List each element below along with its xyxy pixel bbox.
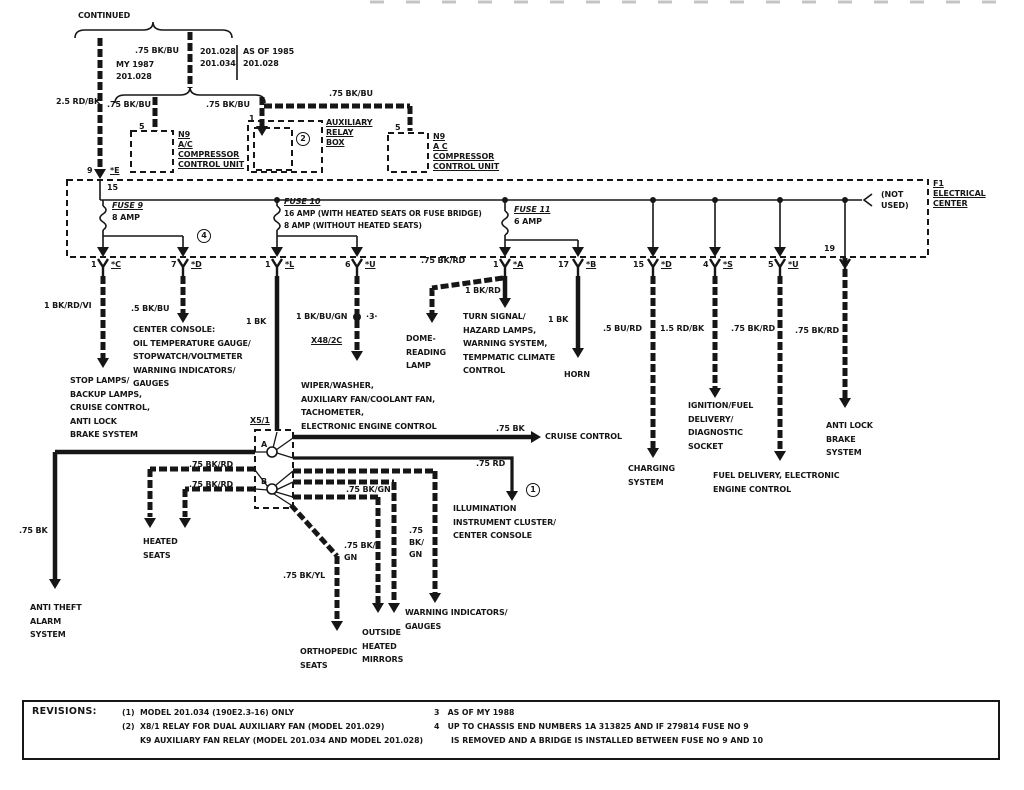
fuse-9-label: FUSE 9 (112, 200, 143, 212)
conn-pin-l: 1 (265, 259, 270, 271)
load-ignition-fuel: IGNITION/FUEL DELIVERY/ DIAGNOSTIC SOCKE… (688, 399, 753, 453)
wire-label-bk-bu-c: .75 BK/BU (206, 99, 250, 111)
wire-label-bk-bu-gn: 1 BK/BU/GN (296, 311, 347, 323)
revisions-title: REVISIONS: (32, 706, 97, 717)
revisions-box: REVISIONS: (1) MODEL 201.034 (190E2.3-16… (22, 700, 1000, 760)
pin-9-entry: 9 (87, 165, 92, 177)
wire-label-rd-75: .75 RD (476, 458, 505, 470)
conn-pin-c: 1 (91, 259, 96, 271)
component-boxes (131, 121, 428, 172)
wire-label-bk-bu-5: .5 BK/BU (131, 303, 169, 315)
load-illumination: ILLUMINATION INSTRUMENT CLUSTER/ CENTER … (453, 502, 556, 543)
load-outside-mirrors: OUTSIDE HEATED MIRRORS (362, 626, 403, 667)
conn-code-d: *D (191, 259, 202, 271)
load-abs-right: ANTI LOCK BRAKE SYSTEM (826, 419, 873, 460)
wire-label-bk-75-cruise: .75 BK (496, 423, 525, 435)
conn-pin-u2: 5 (768, 259, 773, 271)
conn-code-d2: *D (661, 259, 672, 271)
fuse-10-amp1: 16 AMP (WITH HEATED SEATS OR FUSE BRIDGE… (284, 208, 482, 220)
wire-label-bk-gn-h: .75 BK/GN (346, 484, 391, 496)
conn-pin-d2: 15 (633, 259, 644, 271)
x5-point-b: B (261, 476, 267, 488)
wire-label-bk-yl: .75 BK/YL (283, 570, 325, 582)
label-not-used: (NOT USED) (881, 189, 909, 211)
wire-label-bk-rd-fuel: .75 BK/RD (731, 323, 775, 335)
wire-label-bk-rd-seat1: .75 BK/RD (189, 459, 233, 471)
load-anti-theft: ANTI THEFT ALARM SYSTEM (30, 601, 82, 642)
terminal-15-label: 15 (107, 182, 118, 194)
load-wiper-washer: WIPER/WASHER, AUXILIARY FAN/COOLANT FAN,… (301, 379, 437, 433)
fuse-10-amp2: 8 AMP (WITHOUT HEATED SEATS) (284, 220, 422, 232)
wire-label-rd-bk-15: 1.5 RD/BK (660, 323, 704, 335)
component-n9-right: N9 A C COMPRESSOR CONTROL UNIT (433, 132, 499, 172)
conn-pin-b: 17 (558, 259, 569, 271)
load-turn-signal: TURN SIGNAL/ HAZARD LAMPS, WARNING SYSTE… (463, 310, 555, 378)
wire-label-bk-bu-d: .75 BK/BU (329, 88, 373, 100)
x5-junction-b (267, 484, 277, 494)
component-n9-left: N9 A/C COMPRESSOR CONTROL UNIT (178, 130, 244, 170)
revision-4: 4 UP TO CHASSIS END NUMBERS 1A 313825 AN… (434, 722, 749, 731)
wire-label-bk-rd-1: 1 BK/RD (465, 285, 501, 297)
connector-symbols (98, 259, 850, 276)
wiring-diagram-page: CONTINUED .75 BK/BU 201.028 201.034 AS O… (0, 0, 1024, 790)
connector-x48-label: X48/2C (311, 335, 342, 347)
wire-label-25-rd-bk: 2.5 RD/BK (56, 96, 100, 108)
conn-pin-u: 6 (345, 259, 350, 271)
component-f1-electrical-center: F1 ELECTRICAL CENTER (933, 179, 986, 209)
model-version-right: AS OF 1985 201.028 (243, 46, 294, 70)
load-cruise-control: CRUISE CONTROL (545, 430, 622, 444)
wire-label-bk-rd-abs: .75 BK/RD (795, 325, 839, 337)
label-continued: CONTINUED (78, 10, 130, 22)
load-fuel-delivery: FUEL DELIVERY, ELECTRONIC ENGINE CONTROL (713, 469, 840, 496)
conn-code-l: *L (285, 259, 294, 271)
model-year-label: MY 1987 201.028 (116, 59, 154, 83)
load-dome-reading-lamp: DOME- READING LAMP (406, 332, 446, 373)
diagram-lines (0, 0, 1024, 790)
revision-3: 3 AS OF MY 1988 (434, 708, 514, 717)
wire-label-bk-bu-b: .75 BK/BU (107, 99, 151, 111)
load-warning-indicators: WARNING INDICATORS/ GAUGES (405, 606, 507, 633)
conn-code-u: *U (365, 259, 375, 271)
pin-5-left: 5 (139, 121, 144, 133)
wire-label-bk-bu-a: .75 BK/BU (135, 45, 179, 57)
load-orthopedic-seats: ORTHOPEDIC SEATS (300, 645, 357, 672)
revision-note-2-marker: 2 (296, 132, 310, 146)
load-charging-system: CHARGING SYSTEM (628, 462, 675, 489)
x5-junction-a (267, 447, 277, 457)
x5-point-a: A (261, 439, 267, 451)
revision-2b: K9 AUXILIARY FAN RELAY (MODEL 201.034 AN… (140, 736, 423, 745)
conn-code-c: *C (111, 259, 121, 271)
wire-label-bk-rd-dome: .75 BK/RD (421, 255, 465, 267)
model-version-left: 201.028 201.034 (200, 46, 236, 70)
component-aux-relay-box: AUXILIARY RELAY BOX (326, 118, 372, 148)
pin-19-label: 19 (824, 243, 835, 255)
load-center-console: CENTER CONSOLE: OIL TEMPERATURE GAUGE/ S… (133, 323, 251, 391)
connector-x5-label: X5/1 (250, 415, 270, 427)
wire-label-bk-gn-3l: .75 BK/ GN (409, 525, 424, 561)
fuse-10-label: FUSE 10 (284, 196, 320, 208)
wire-label-bk-gn-2l: .75 BK/ GN (344, 540, 375, 564)
pin-5-right: 5 (395, 122, 400, 134)
conn-code-s: *S (723, 259, 733, 271)
conn-pin-a: 1 (493, 259, 498, 271)
wire-label-bk-rd-vi: 1 BK/RD/VI (44, 300, 91, 312)
conn-code-a: *A (513, 259, 523, 271)
revision-note-3-marker: ·3· (366, 311, 377, 323)
wire-label-bk-75-theft: .75 BK (19, 525, 48, 537)
conn-code-b: *B (586, 259, 596, 271)
conn-pin-d: 7 (171, 259, 176, 271)
revision-4b: IS REMOVED AND A BRIDGE IS INSTALLED BET… (451, 736, 763, 745)
load-heated-seats: HEATED SEATS (143, 535, 178, 562)
wire-label-bk-rd-seat2: .75 BK/RD (189, 479, 233, 491)
conn-code-u2: *U (788, 259, 798, 271)
fuse-9-amp: 8 AMP (112, 212, 140, 224)
revision-note-4-marker: 4 (197, 229, 211, 243)
conn-pin-s: 4 (703, 259, 708, 271)
connector-code-e: *E (110, 165, 119, 177)
fuse-11-amp: 6 AMP (514, 216, 542, 228)
revision-1: (1) MODEL 201.034 (190E2.3-16) ONLY (122, 708, 294, 717)
pin-1-aux: 1 (249, 113, 254, 125)
revision-note-1-marker: 1 (526, 483, 540, 497)
fuse-11-label: FUSE 11 (514, 204, 550, 216)
revision-2: (2) X8/1 RELAY FOR DUAL AUXILIARY FAN (M… (122, 722, 384, 731)
wire-label-bu-rd: .5 BU/RD (603, 323, 642, 335)
load-horn: HORN (564, 368, 590, 382)
electrical-center-box (67, 180, 928, 257)
